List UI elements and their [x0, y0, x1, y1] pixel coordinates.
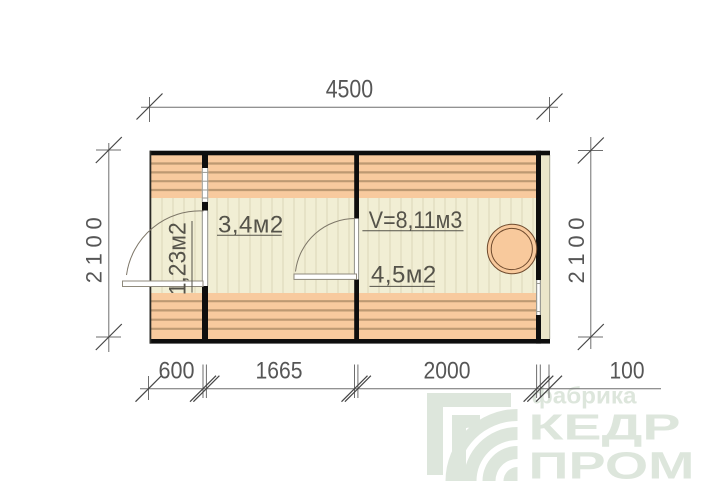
- svg-text:1,23м2: 1,23м2: [165, 222, 192, 295]
- svg-text:фабрика: фабрика: [532, 383, 637, 409]
- svg-text:3,4м2: 3,4м2: [218, 212, 284, 239]
- svg-text:ПРОМ: ПРОМ: [529, 446, 695, 488]
- svg-text:100: 100: [610, 358, 645, 385]
- svg-text:2000: 2000: [424, 358, 471, 385]
- svg-text:4,5м2: 4,5м2: [371, 262, 437, 289]
- svg-text:1665: 1665: [256, 358, 303, 385]
- svg-text:V=8,11м3: V=8,11м3: [369, 207, 463, 234]
- svg-text:КЕДР: КЕДР: [529, 406, 681, 447]
- svg-text:4500: 4500: [326, 76, 374, 104]
- svg-text:600: 600: [159, 358, 195, 385]
